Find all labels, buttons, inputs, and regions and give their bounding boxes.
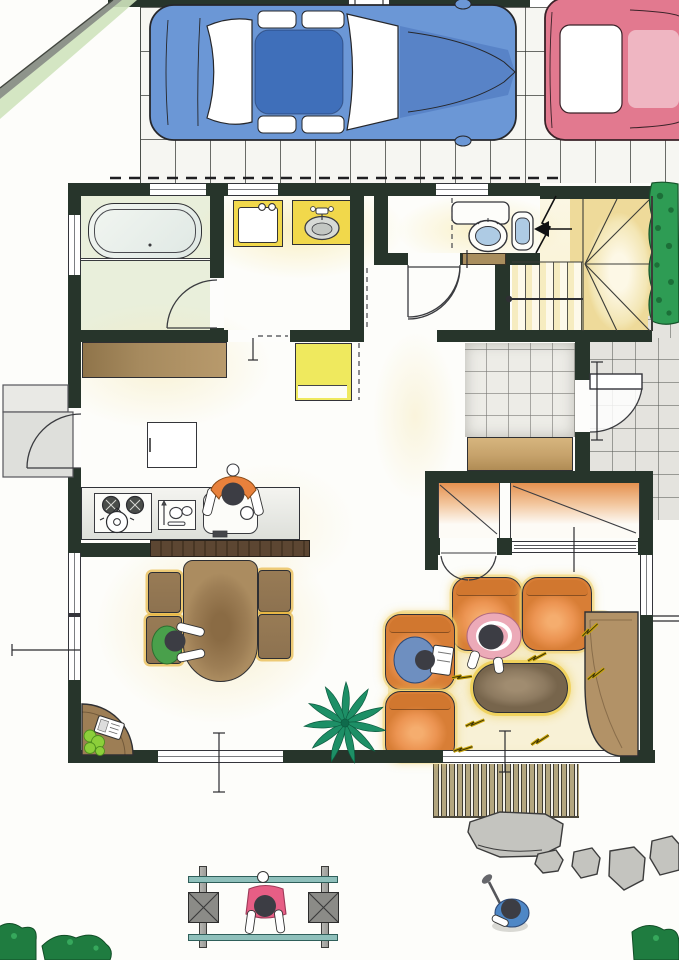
loveseat-left-cushion xyxy=(452,577,522,651)
kitchen-sink xyxy=(203,492,258,534)
coffee-table xyxy=(473,663,568,713)
kitchen-half-wall xyxy=(81,543,150,557)
cutting-board xyxy=(158,500,196,530)
wall-top-stairs xyxy=(540,186,652,199)
washroom-sliding-opening xyxy=(228,330,290,342)
wall-closet-bottom-a xyxy=(425,538,440,555)
wall-hall-toilet xyxy=(374,196,388,253)
wall-wash-hall xyxy=(350,196,364,330)
bar-counter xyxy=(150,540,310,557)
wall-closet-left xyxy=(425,471,438,570)
person-golfing xyxy=(480,872,529,932)
drying-bar xyxy=(188,934,338,941)
hedge xyxy=(649,182,679,324)
toilet-door-arc xyxy=(408,265,460,317)
refrigerator xyxy=(295,343,352,401)
sliding-glass-door xyxy=(443,750,620,763)
armchair-reading xyxy=(385,614,455,690)
refrigerator-door xyxy=(298,385,347,398)
bathtub xyxy=(88,203,202,259)
drying-bar xyxy=(188,876,338,883)
fence-gate-gap xyxy=(348,0,390,7)
window-mullion xyxy=(68,613,81,617)
window xyxy=(68,215,81,275)
wall-closet-bottom-b xyxy=(497,538,512,555)
window xyxy=(436,183,488,196)
genkan-step xyxy=(467,437,573,471)
island-table xyxy=(147,422,197,468)
wall-right xyxy=(640,471,653,763)
washing-machine xyxy=(233,200,283,247)
bathroom-door-opening xyxy=(210,278,224,328)
closet-large-interior xyxy=(510,483,640,538)
corner-phone-table xyxy=(82,704,133,756)
bathtub-inner-rim xyxy=(94,209,196,253)
back-door-opening xyxy=(68,408,81,468)
closet-sliding-doors xyxy=(512,541,638,553)
front-door-opening xyxy=(575,380,590,432)
kitchen-side-counter xyxy=(82,342,227,378)
dining-chair xyxy=(148,572,181,613)
stove-panel xyxy=(94,493,152,533)
hall-door-arc xyxy=(408,267,460,319)
wall-under-stairs xyxy=(495,253,510,342)
dining-table xyxy=(183,560,258,682)
wall-mid-kitchen xyxy=(68,330,364,342)
wall-closet-top xyxy=(425,471,652,483)
genkan-tile-floor xyxy=(465,343,575,437)
toilet-door-opening xyxy=(408,253,460,265)
garden-bushes xyxy=(0,923,679,960)
dining-chair xyxy=(146,616,182,664)
fence-gate-gap xyxy=(530,0,560,7)
washing-machine-lid xyxy=(238,207,278,243)
site-boundary xyxy=(0,0,137,119)
window xyxy=(158,750,283,763)
closet-small-interior xyxy=(438,483,500,538)
toilet xyxy=(452,202,509,252)
wall-closet-bottom-c xyxy=(638,538,652,555)
closet-folding-doors xyxy=(441,553,496,580)
stair-steps xyxy=(512,262,583,334)
floor-plan-canvas xyxy=(0,0,679,960)
window xyxy=(150,183,206,196)
wood-deck xyxy=(433,764,579,818)
pole-base-stone xyxy=(188,892,219,923)
bath-divider xyxy=(81,258,210,261)
pole-base-stone xyxy=(308,892,339,923)
wall-mid-genkan xyxy=(437,330,652,342)
street-fence xyxy=(108,0,679,7)
stepping-stones xyxy=(468,812,679,890)
back-door-steps xyxy=(3,385,73,477)
stair-threshold xyxy=(462,253,506,265)
loveseat-right-cushion xyxy=(522,577,592,651)
driveway-tiles xyxy=(140,0,679,183)
toilet-hand-basin xyxy=(512,212,533,250)
window xyxy=(228,183,278,196)
dining-chair xyxy=(258,614,291,659)
washbasin-unit xyxy=(292,200,353,245)
window xyxy=(640,555,653,615)
dining-chair xyxy=(258,570,291,612)
